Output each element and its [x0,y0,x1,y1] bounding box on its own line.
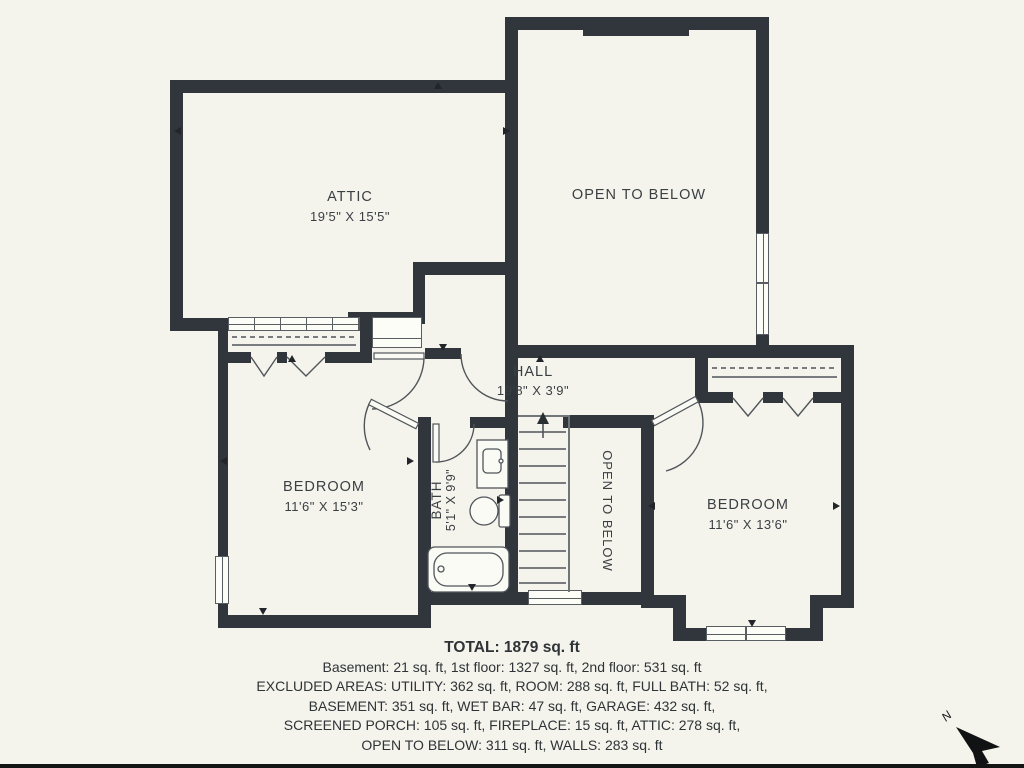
sink-faucet-icon [499,459,503,463]
door-arc [364,402,370,450]
room-dims-bedroom-left: 11'6" X 15'3" [224,499,424,514]
room-label-open-to-below-upper: OPEN TO BELOW [509,187,769,203]
door-leaf [652,396,699,425]
summary-line: BASEMENT: 351 sq. ft, WET BAR: 47 sq. ft… [0,697,1024,717]
dimension-marker [407,457,414,465]
dimension-marker [536,355,544,362]
room-label-bedroom-left: BEDROOM [224,479,424,495]
stairs-up-arrow [537,412,549,424]
room-label-open-to-below-stairwell: OPEN TO BELOW [597,426,615,596]
summary-line: SCREENED PORCH: 105 sq. ft, FIREPLACE: 1… [0,716,1024,736]
dimension-marker [439,344,447,351]
room-label-bath-name: BATH [429,445,444,555]
dimension-marker [434,82,442,89]
room-dims-hall: 19'8" X 3'9" [453,383,613,398]
dimension-marker [503,127,510,135]
dimension-marker [748,620,756,627]
summary-line: Basement: 21 sq. ft, 1st floor: 1327 sq.… [0,658,1024,678]
toilet-bowl-icon [470,497,498,525]
stairs [519,420,566,583]
bifold-door [251,357,277,376]
dimension-marker [220,457,227,465]
summary-line: OPEN TO BELOW: 311 sq. ft, WALLS: 283 sq… [0,736,1024,756]
room-dims-bath: 5'1" X 9'9" [444,445,458,555]
bifold-door [733,398,763,416]
page-border [0,764,1024,768]
dimension-marker [174,127,181,135]
summary-total: TOTAL: 1879 sq. ft [0,638,1024,658]
room-dims-attic: 19'5" X 15'5" [250,209,450,224]
door-leaf [374,353,424,359]
room-label-bedroom-right: BEDROOM [648,497,848,513]
area-summary: TOTAL: 1879 sq. ft Basement: 21 sq. ft, … [0,638,1024,755]
room-label-hall: HALL [453,364,613,380]
bifold-door [783,398,813,416]
bathtub-faucet-icon [438,566,444,572]
floor-plan: N ATTIC 19'5" X 15'5" OPEN TO BELOW HALL… [0,0,1024,768]
door-arc [372,357,424,409]
dimension-marker [259,608,267,615]
room-label-attic: ATTIC [250,189,450,205]
room-dims-bedroom-right: 11'6" X 13'6" [648,517,848,532]
room-label-bath: BATH 5'1" X 9'9" [429,445,465,555]
dimension-markers [174,82,840,627]
summary-line: EXCLUDED AREAS: UTILITY: 362 sq. ft, ROO… [0,677,1024,697]
vanity-sink-icon [483,449,501,473]
